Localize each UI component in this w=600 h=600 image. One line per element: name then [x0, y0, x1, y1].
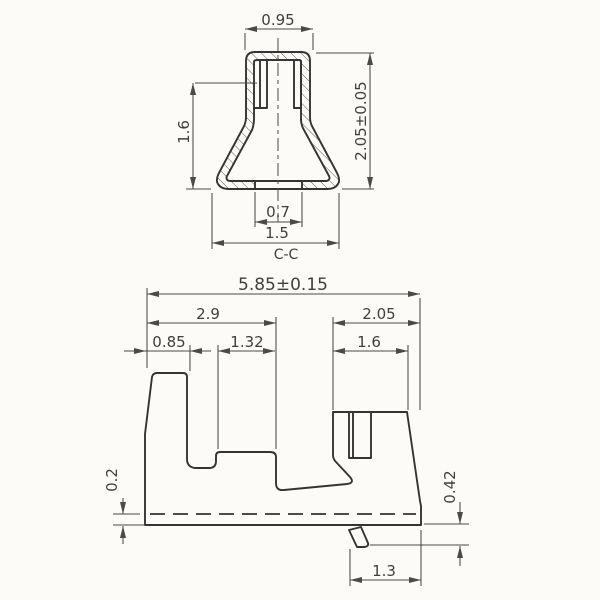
dim-foot-height-label: 0.42 — [441, 470, 459, 503]
section-label: C-C — [274, 247, 299, 263]
dim-foot-offset: 1.3 — [350, 530, 421, 586]
inner-tab-left — [254, 61, 267, 108]
dim-right-height-label: 2.05±0.05 — [352, 81, 370, 160]
technical-drawing: 0.95 1.6 2.05±0.05 0.7 1.5 — [0, 0, 600, 600]
dim-standoff-label: 0.2 — [103, 468, 121, 492]
dim-cavity-width-label: 1.32 — [230, 333, 263, 351]
dim-base-width-label: 1.5 — [265, 224, 289, 242]
dim-right-span: 2.05 — [333, 305, 420, 410]
dim-slot-width-label: 0.7 — [266, 203, 290, 221]
dim-top-width: 0.95 — [245, 11, 313, 50]
dim-left-span-label: 2.9 — [196, 305, 220, 323]
dim-cavity-width: 1.32 — [218, 333, 275, 449]
contact-box — [349, 412, 371, 458]
dim-tab-width: 0.85 — [124, 333, 211, 371]
dim-left-height-label: 1.6 — [175, 120, 193, 144]
inner-tab-right — [294, 61, 301, 108]
dim-top-width-label: 0.95 — [261, 11, 294, 29]
dim-overall-width-label: 5.85±0.15 — [238, 275, 328, 295]
dim-standoff: 0.2 — [103, 468, 144, 544]
dim-pocket-width: 1.6 — [333, 333, 408, 410]
solder-foot — [349, 527, 368, 547]
dim-foot-height: 0.42 — [370, 470, 469, 566]
dim-right-span-label: 2.05 — [362, 305, 395, 323]
dim-base-width: 1.5 — [212, 193, 339, 249]
dim-pocket-width-label: 1.6 — [357, 333, 381, 351]
section-view: 0.95 1.6 2.05±0.05 0.7 1.5 — [175, 11, 374, 263]
dim-left-span: 2.9 — [147, 305, 276, 449]
dim-foot-offset-label: 1.3 — [372, 562, 396, 580]
dim-tab-width-label: 0.85 — [152, 333, 185, 351]
side-view: 5.85±0.15 2.9 2.05 0.85 1.32 — [103, 275, 469, 586]
engineering-drawing-page: 0.95 1.6 2.05±0.05 0.7 1.5 — [0, 0, 600, 600]
housing-outline — [145, 373, 421, 525]
